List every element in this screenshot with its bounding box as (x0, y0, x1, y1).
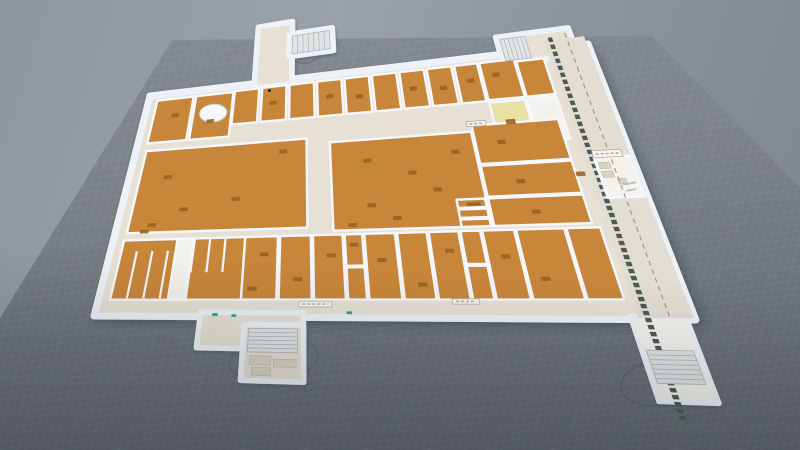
furniture-mark (418, 283, 428, 287)
furniture-mark (501, 254, 511, 258)
furniture-mark (540, 277, 550, 281)
furniture-mark (293, 277, 302, 281)
3d-floorplan-viewport[interactable] (0, 0, 800, 450)
furniture-mark (575, 171, 586, 176)
mouse-cursor (268, 89, 271, 92)
green-marker (231, 314, 236, 317)
room (289, 82, 315, 119)
furniture-mark (497, 139, 506, 144)
furniture-mark (393, 216, 402, 220)
furniture-mark (350, 243, 359, 247)
room (458, 209, 489, 218)
furniture-mark (348, 223, 357, 227)
room (313, 234, 346, 299)
furniture-mark (247, 287, 257, 291)
furniture-mark (179, 207, 188, 211)
furniture-mark (492, 72, 500, 77)
room (241, 236, 278, 299)
room (372, 73, 402, 112)
furniture-mark (467, 78, 475, 83)
furniture-mark (532, 209, 542, 214)
furniture-mark (378, 258, 387, 262)
fixture (249, 356, 271, 366)
furniture-mark (163, 175, 172, 179)
furniture-mark (505, 119, 516, 125)
furniture-mark (367, 203, 376, 207)
green-marker (212, 313, 218, 316)
furniture-mark (445, 249, 455, 253)
furniture-mark (516, 179, 525, 184)
fixture (251, 367, 271, 376)
furniture-mark (269, 101, 276, 106)
furniture-mark (451, 149, 460, 154)
furniture-mark (148, 223, 157, 227)
fixture (273, 359, 296, 367)
furniture-mark (408, 170, 417, 175)
furniture-mark (439, 85, 447, 90)
furniture-mark (231, 197, 240, 201)
furniture-mark (326, 94, 333, 99)
furniture-mark (410, 86, 418, 91)
green-marker (347, 311, 353, 314)
furniture-mark (327, 253, 336, 257)
post-dot (679, 416, 687, 421)
furniture-mark (356, 94, 364, 99)
room (279, 235, 312, 299)
room (460, 219, 491, 227)
fixture (598, 162, 611, 169)
stair-tread (319, 32, 320, 50)
furniture-mark (260, 252, 269, 256)
furniture-mark (467, 202, 481, 206)
room (231, 88, 259, 124)
room (347, 267, 368, 300)
furniture-mark (279, 149, 287, 153)
post-dot (676, 409, 684, 414)
furniture-mark (140, 230, 149, 234)
furniture-mark (206, 119, 214, 123)
room (364, 233, 402, 300)
furniture-mark (433, 187, 442, 192)
room (345, 234, 365, 266)
fixture (601, 171, 615, 178)
room (481, 161, 583, 197)
furniture-mark (363, 158, 371, 163)
building-floorplan (0, 0, 800, 450)
